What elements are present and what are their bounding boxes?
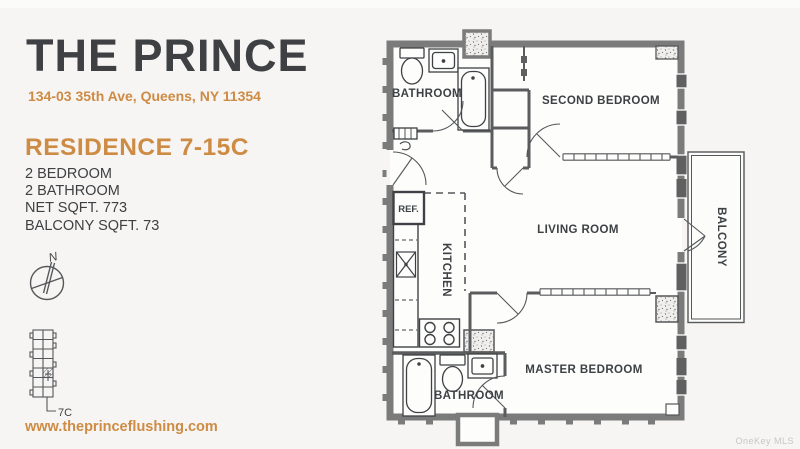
building-key-plan [30,330,56,411]
floor-plan: BATHROOM SECOND BEDROOM LIVING ROOM KITC… [383,31,745,444]
label-balcony: BALCONY [715,207,727,267]
label-second-bedroom: SECOND BEDROOM [542,95,660,107]
sink-top [429,49,458,72]
label-bathroom-bottom: BATHROOM [434,390,504,402]
label-living-room: LIVING ROOM [537,224,619,236]
label-kitchen: KITCHEN [440,243,452,297]
stove [420,319,460,347]
compass-icon [31,262,64,300]
flyer-root: THE PRINCE 134-03 35th Ave, Queens, NY 1… [0,0,800,449]
sink-bottom [468,354,497,378]
key-plan-unit-label: 7C [58,407,72,419]
floor-plan-svg: N 7C [0,0,800,449]
shaft-master [656,296,678,322]
shaft-top-right [656,46,678,59]
toilet-top [400,48,424,84]
toilet-bottom [440,355,465,392]
bathtub-top [458,68,489,130]
shaft-top [464,31,490,57]
compass-north-label: N [47,249,59,265]
label-bathroom-top: BATHROOM [392,88,462,100]
label-ref: REF. [398,204,419,215]
bay-protrusion [458,415,497,444]
bathtub-bottom [403,355,435,416]
corner-step [666,404,679,415]
label-master-bedroom: MASTER BEDROOM [525,364,642,376]
